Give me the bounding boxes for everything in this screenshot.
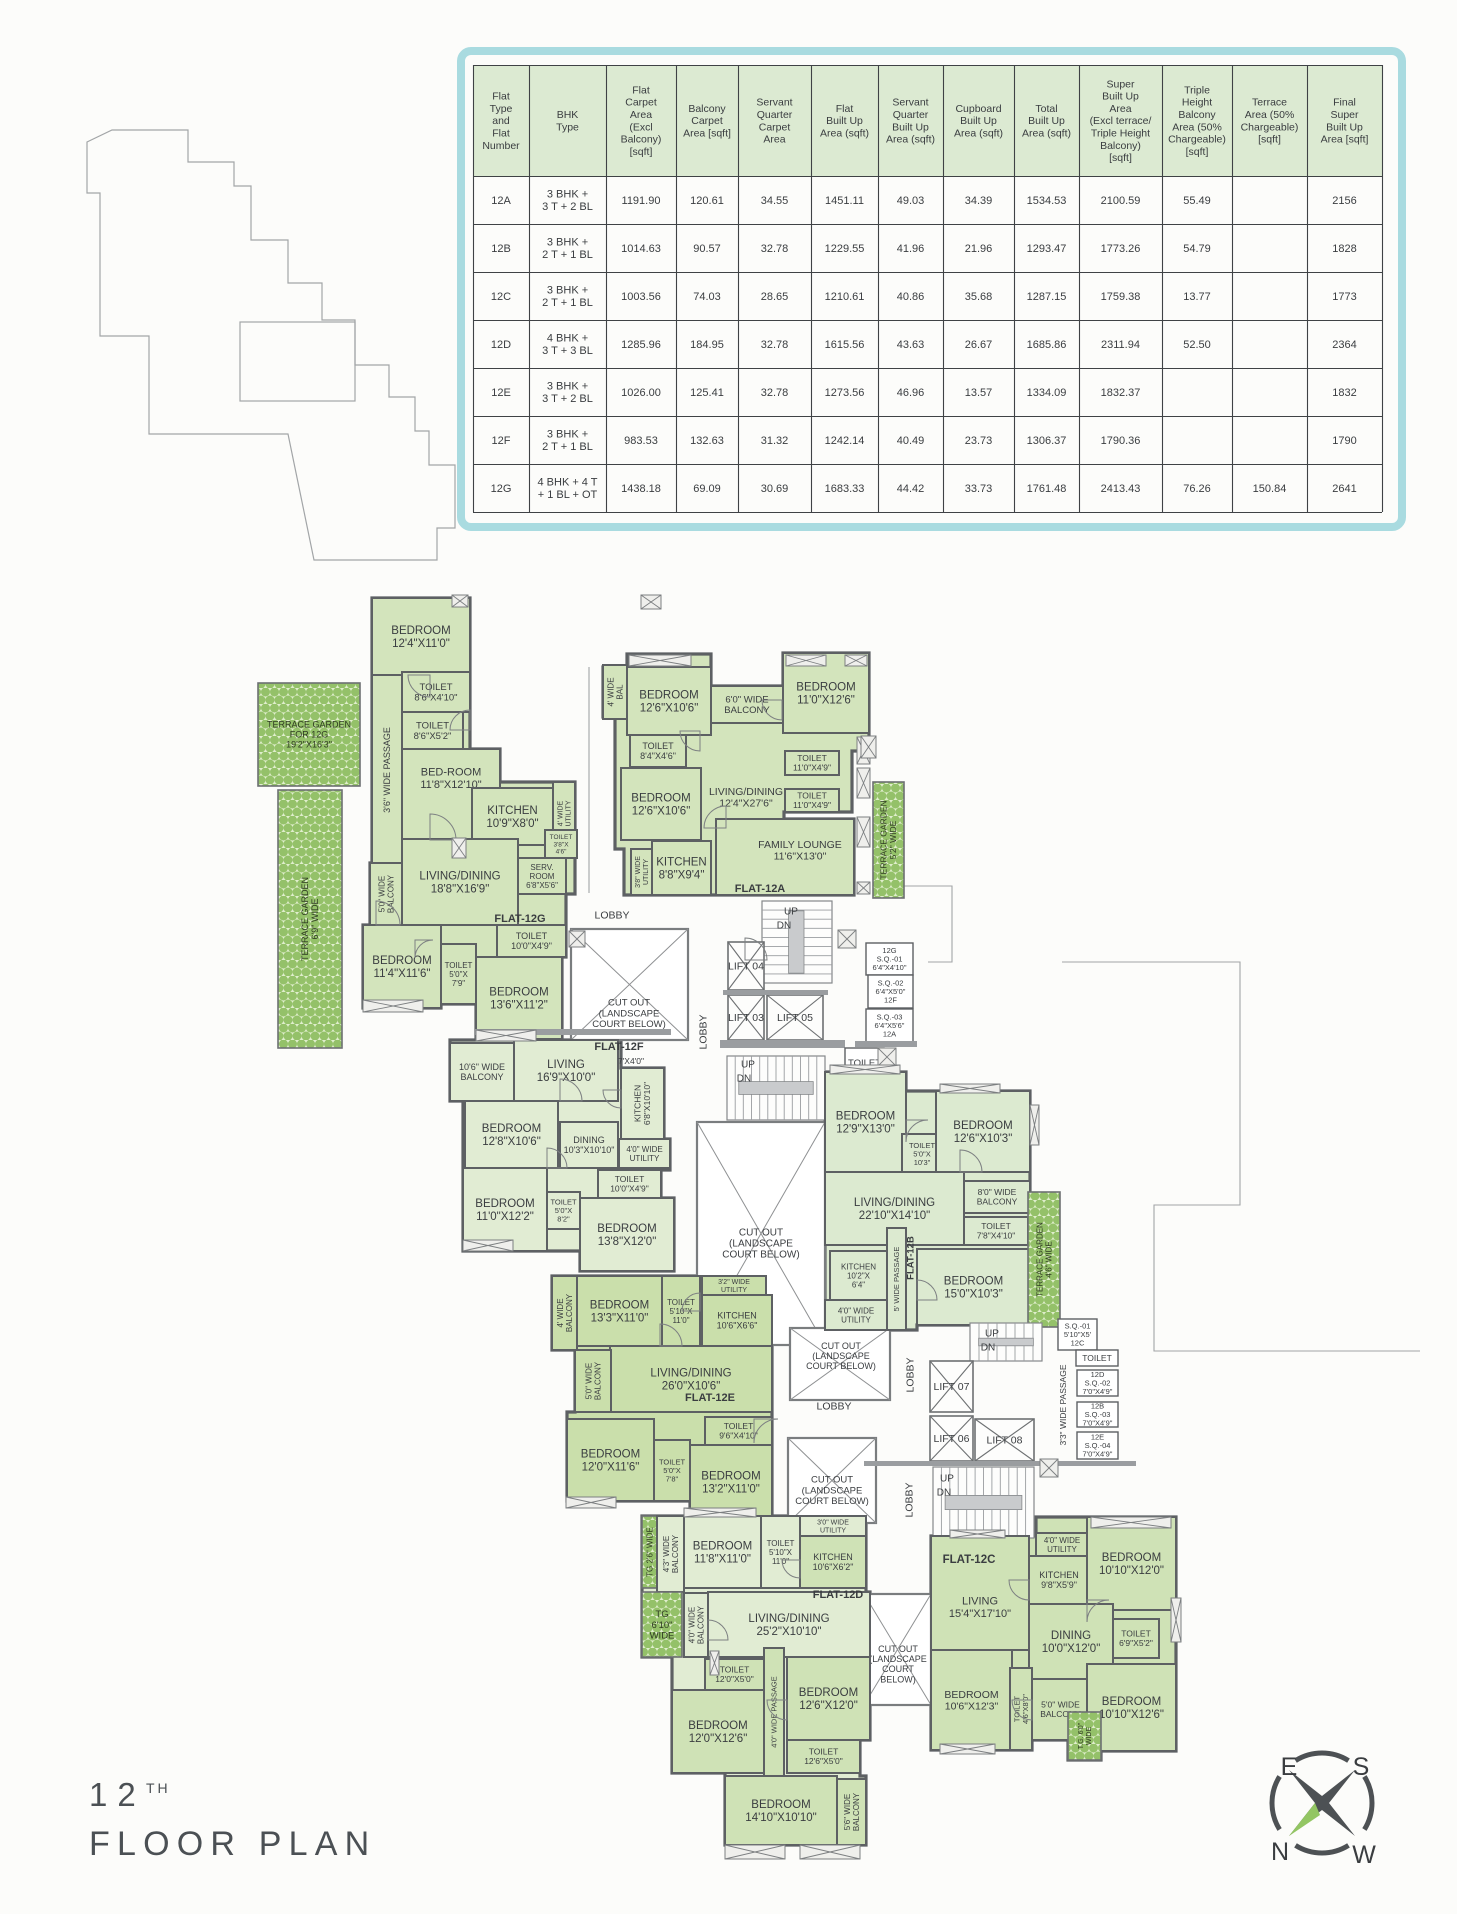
svg-text:13.77: 13.77	[1183, 291, 1211, 303]
svg-text:1210.61: 1210.61	[825, 291, 865, 303]
svg-text:132.63: 132.63	[690, 435, 724, 447]
svg-text:1306.37: 1306.37	[1027, 435, 1067, 447]
svg-text:8'0" WIDEBALCONY: 8'0" WIDEBALCONY	[977, 1187, 1018, 1207]
svg-text:3 BHK +2 T + 1 BL: 3 BHK +2 T + 1 BL	[542, 237, 593, 262]
svg-text:1287.15: 1287.15	[1027, 291, 1067, 303]
svg-text:LIFT 08: LIFT 08	[987, 1435, 1023, 1447]
svg-text:31.32: 31.32	[761, 435, 789, 447]
svg-text:32.78: 32.78	[761, 387, 789, 399]
svg-text:ServantQuarterBuilt UpArea (sq: ServantQuarterBuilt UpArea (sqft)	[886, 97, 935, 146]
svg-text:N: N	[1271, 1838, 1289, 1866]
svg-text:4'0" WIDEUTILITY: 4'0" WIDEUTILITY	[1044, 1536, 1080, 1554]
svg-text:44.42: 44.42	[897, 483, 925, 495]
svg-text:BEDROOM11'0"X12'2": BEDROOM11'0"X12'2"	[475, 1198, 534, 1223]
svg-text:1451.11: 1451.11	[825, 195, 864, 207]
svg-text:76.26: 76.26	[1183, 483, 1211, 495]
svg-text:BEDROOM14'10"X10'10": BEDROOM14'10"X10'10"	[745, 1799, 816, 1824]
svg-text:BEDROOM12'0"X12'6": BEDROOM12'0"X12'6"	[688, 1720, 747, 1745]
svg-text:DN: DN	[777, 921, 791, 932]
svg-text:43.63: 43.63	[897, 339, 925, 351]
svg-text:FLOOR PLAN: FLOOR PLAN	[89, 1825, 376, 1863]
svg-text:LOBBY: LOBBY	[904, 1482, 916, 1517]
svg-text:3 BHK +3 T + 2 BL: 3 BHK +3 T + 2 BL	[542, 189, 593, 214]
svg-text:LIVING/DINING26'0"X10'6": LIVING/DINING26'0"X10'6"	[650, 1368, 731, 1393]
svg-text:1832: 1832	[1332, 387, 1356, 399]
svg-text:21.96: 21.96	[965, 243, 993, 255]
svg-text:TG 2'6" WIDE: TG 2'6" WIDE	[645, 1527, 654, 1577]
svg-text:6'0" WIDEBALCONY: 6'0" WIDEBALCONY	[724, 695, 770, 717]
svg-text:3'6" WIDE PASSAGE: 3'6" WIDE PASSAGE	[382, 727, 392, 813]
svg-text:1773.26: 1773.26	[1101, 243, 1141, 255]
svg-text:TOILET9'6"X4'10": TOILET9'6"X4'10"	[719, 1421, 758, 1441]
svg-text:LIFT 04: LIFT 04	[728, 961, 764, 973]
svg-text:LOBBY: LOBBY	[698, 1014, 710, 1049]
svg-text:TOILET: TOILET	[1082, 1353, 1112, 1363]
svg-text:KITCHEN10'6"X6'6": KITCHEN10'6"X6'6"	[717, 1311, 758, 1331]
svg-text:UP: UP	[940, 1474, 954, 1485]
svg-text:1790.36: 1790.36	[1101, 435, 1141, 447]
svg-text:1273.56: 1273.56	[825, 387, 865, 399]
svg-text:BEDROOM12'0"X11'6": BEDROOM12'0"X11'6"	[581, 1449, 640, 1474]
svg-text:150.84: 150.84	[1253, 483, 1287, 495]
svg-text:LIFT 05: LIFT 05	[777, 1012, 813, 1024]
svg-text:10'6" WIDEBALCONY: 10'6" WIDEBALCONY	[459, 1062, 505, 1082]
svg-text:TOILET12'0"X5'0": TOILET12'0"X5'0"	[715, 1665, 754, 1685]
svg-text:1285.96: 1285.96	[621, 339, 661, 351]
svg-text:2364: 2364	[1332, 339, 1356, 351]
svg-text:40.49: 40.49	[897, 435, 925, 447]
svg-text:1334.09: 1334.09	[1027, 387, 1067, 399]
svg-text:BEDROOM12'6"X10'6": BEDROOM12'6"X10'6"	[631, 793, 690, 818]
svg-text:FLAT-12A: FLAT-12A	[735, 883, 786, 895]
svg-text:1832.37: 1832.37	[1101, 387, 1141, 399]
svg-text:120.61: 120.61	[690, 195, 724, 207]
svg-text:1828: 1828	[1332, 243, 1356, 255]
svg-text:28.65: 28.65	[761, 291, 789, 303]
svg-text:1615.56: 1615.56	[825, 339, 865, 351]
svg-text:BEDROOM12'4"X11'0": BEDROOM12'4"X11'0"	[391, 625, 450, 650]
svg-text:BEDROOM12'6"X12'0": BEDROOM12'6"X12'0"	[799, 1687, 858, 1712]
svg-text:4'3" WIDEBALCONY: 4'3" WIDEBALCONY	[662, 1534, 680, 1573]
svg-text:UP: UP	[741, 1060, 755, 1071]
svg-text:BEDROOM13'6"X11'2": BEDROOM13'6"X11'2"	[489, 987, 548, 1012]
svg-text:1293.47: 1293.47	[1027, 243, 1067, 255]
svg-text:46.96: 46.96	[897, 387, 925, 399]
svg-text:34.39: 34.39	[965, 195, 993, 207]
svg-text:34.55: 34.55	[761, 195, 789, 207]
svg-text:2641: 2641	[1332, 483, 1356, 495]
svg-text:FLAT-12B: FLAT-12B	[905, 1236, 916, 1280]
svg-text:5'0" WIDEBALCONY: 5'0" WIDEBALCONY	[584, 1361, 602, 1400]
svg-text:1191.90: 1191.90	[622, 195, 661, 207]
svg-text:BEDROOM10'10"X12'6": BEDROOM10'10"X12'6"	[1099, 1696, 1164, 1721]
svg-text:49.03: 49.03	[897, 195, 925, 207]
svg-text:23.73: 23.73	[965, 435, 993, 447]
svg-text:12B: 12B	[491, 243, 511, 255]
svg-text:KITCHEN10'6"X6'2": KITCHEN10'6"X6'2"	[813, 1552, 854, 1572]
svg-text:LOBBY: LOBBY	[905, 1357, 917, 1392]
svg-text:UP: UP	[784, 907, 798, 918]
svg-text:FLAT-12E: FLAT-12E	[685, 1392, 735, 1404]
svg-text:DN: DN	[937, 1488, 951, 1499]
svg-text:1438.18: 1438.18	[621, 483, 661, 495]
svg-text:TOILET8'4"X4'6": TOILET8'4"X4'6"	[640, 741, 676, 761]
svg-text:4'0" WIDEBALCONY: 4'0" WIDEBALCONY	[687, 1605, 705, 1644]
svg-text:TOILET7'8"X4'10": TOILET7'8"X4'10"	[977, 1221, 1016, 1241]
svg-text:LOBBY: LOBBY	[594, 910, 629, 922]
svg-text:3 BHK +3 T + 2 BL: 3 BHK +3 T + 2 BL	[542, 381, 593, 406]
svg-text:3 BHK +2 T + 1 BL: 3 BHK +2 T + 1 BL	[542, 285, 593, 310]
svg-text:BEDROOM15'0"X10'3": BEDROOM15'0"X10'3"	[944, 1276, 1003, 1301]
svg-text:W: W	[1352, 1841, 1376, 1869]
svg-text:FLAT-12F: FLAT-12F	[594, 1041, 644, 1053]
svg-text:12D: 12D	[491, 339, 511, 351]
svg-text:12E: 12E	[491, 387, 511, 399]
svg-text:LOBBY: LOBBY	[816, 1401, 851, 1413]
svg-text:1761.48: 1761.48	[1027, 483, 1067, 495]
svg-text:4' WIDEUTILITY: 4' WIDEUTILITY	[558, 800, 573, 826]
svg-text:FLAT-12D: FLAT-12D	[813, 1589, 864, 1601]
svg-text:74.03: 74.03	[693, 291, 721, 303]
svg-text:33.73: 33.73	[965, 483, 993, 495]
svg-text:KITCHEN9'8"X5'9": KITCHEN9'8"X5'9"	[1039, 1570, 1079, 1590]
svg-text:12F: 12F	[492, 435, 511, 447]
svg-text:TOILET8'6"X5'2": TOILET8'6"X5'2"	[414, 721, 452, 743]
svg-text:LIFT 06: LIFT 06	[934, 1433, 970, 1445]
svg-text:3'0" WIDEUTILITY: 3'0" WIDEUTILITY	[817, 1520, 849, 1535]
svg-text:69.09: 69.09	[693, 483, 721, 495]
svg-text:5'6" WIDEBALCONY: 5'6" WIDEBALCONY	[843, 1792, 861, 1831]
svg-text:5' WIDE PASSAGE: 5' WIDE PASSAGE	[892, 1247, 901, 1312]
svg-text:BEDROOM13'2"X11'0": BEDROOM13'2"X11'0"	[701, 1471, 760, 1496]
svg-text:1759.38: 1759.38	[1101, 291, 1141, 303]
svg-text:55.49: 55.49	[1183, 195, 1211, 207]
svg-text:40.86: 40.86	[897, 291, 925, 303]
svg-text:BEDROOM12'8"X10'6": BEDROOM12'8"X10'6"	[482, 1123, 541, 1148]
svg-text:12G: 12G	[491, 483, 512, 495]
svg-text:2156: 2156	[1332, 195, 1356, 207]
svg-text:S: S	[1353, 1753, 1370, 1781]
svg-text:KITCHEN6'8"X10'10": KITCHEN6'8"X10'10"	[633, 1082, 653, 1125]
svg-text:BEDROOM10'10"X12'0": BEDROOM10'10"X12'0"	[1099, 1552, 1164, 1577]
svg-text:2311.94: 2311.94	[1101, 339, 1140, 351]
svg-text:35.68: 35.68	[965, 291, 993, 303]
svg-text:4'0" WIDEUTILITY: 4'0" WIDEUTILITY	[838, 1306, 874, 1324]
svg-text:3'8" WIDEUTILITY: 3'8" WIDEUTILITY	[635, 856, 650, 888]
svg-text:KITCHEN8'8"X9'4": KITCHEN8'8"X9'4"	[656, 857, 706, 882]
svg-text:FLAT-12G: FLAT-12G	[494, 913, 545, 925]
svg-text:E: E	[1281, 1753, 1298, 1781]
svg-text:SERV.ROOM6'8"X5'6": SERV.ROOM6'8"X5'6"	[526, 863, 558, 890]
svg-text:1773: 1773	[1332, 291, 1356, 303]
svg-text:TOILET10'0"X4'9": TOILET10'0"X4'9"	[511, 931, 552, 951]
svg-text:CupboardBuilt UpArea (sqft): CupboardBuilt UpArea (sqft)	[954, 103, 1003, 140]
svg-text:DN: DN	[737, 1074, 751, 1085]
svg-text:32.78: 32.78	[761, 243, 789, 255]
svg-text:4' WIDEBALCONY: 4' WIDEBALCONY	[556, 1293, 574, 1332]
svg-text:FLAT-12C: FLAT-12C	[943, 1554, 996, 1566]
svg-text:BHKType: BHKType	[556, 109, 579, 133]
svg-text:1242.14: 1242.14	[825, 435, 865, 447]
svg-text:1790: 1790	[1332, 435, 1356, 447]
svg-text:3'2" WIDEUTILITY: 3'2" WIDEUTILITY	[718, 1279, 750, 1294]
svg-text:983.53: 983.53	[624, 435, 658, 447]
svg-text:12A: 12A	[491, 195, 511, 207]
svg-text:BEDROOM12'9"X13'0": BEDROOM12'9"X13'0"	[836, 1111, 895, 1136]
svg-text:125.41: 125.41	[690, 387, 724, 399]
svg-text:TOILET11'0"X4'9": TOILET11'0"X4'9"	[793, 791, 831, 811]
svg-text:LIFT 03: LIFT 03	[728, 1012, 764, 1024]
svg-text:TOILET11'0"X4'9": TOILET11'0"X4'9"	[793, 753, 831, 773]
svg-text:1026.00: 1026.00	[621, 387, 661, 399]
svg-text:LIFT 07: LIFT 07	[934, 1381, 970, 1393]
svg-text:LIVING/DINING22'10"X14'10": LIVING/DINING22'10"X14'10"	[854, 1197, 935, 1222]
svg-text:1003.56: 1003.56	[621, 291, 661, 303]
svg-text:7'X4'0": 7'X4'0"	[618, 1056, 644, 1066]
svg-text:13.57: 13.57	[965, 387, 993, 399]
svg-text:3 BHK +2 T + 1 BL: 3 BHK +2 T + 1 BL	[542, 429, 593, 454]
svg-text:BEDROOM13'3"X11'0": BEDROOM13'3"X11'0"	[590, 1300, 649, 1325]
svg-text:3'3" WIDE PASSAGE: 3'3" WIDE PASSAGE	[1058, 1364, 1068, 1445]
svg-text:2100.59: 2100.59	[1101, 195, 1141, 207]
svg-text:90.57: 90.57	[693, 243, 721, 255]
svg-text:TOILET10'0"X4'9": TOILET10'0"X4'9"	[610, 1174, 649, 1194]
svg-text:32.78: 32.78	[761, 339, 789, 351]
svg-text:TOILET6'9"X5'2": TOILET6'9"X5'2"	[1119, 1629, 1153, 1649]
svg-text:1683.33: 1683.33	[825, 483, 865, 495]
svg-text:LIVING/DINING25'2"X10'10": LIVING/DINING25'2"X10'10"	[748, 1613, 829, 1638]
svg-text:UP: UP	[985, 1329, 999, 1340]
svg-text:1534.53: 1534.53	[1027, 195, 1067, 207]
svg-text:LIVING/DINING12'4"X27'6": LIVING/DINING12'4"X27'6"	[709, 786, 783, 810]
svg-text:DN: DN	[981, 1343, 995, 1354]
svg-text:BEDROOM12'6"X10'3": BEDROOM12'6"X10'3"	[953, 1120, 1012, 1145]
svg-text:BEDROOM11'8"X11'0": BEDROOM11'8"X11'0"	[693, 1541, 752, 1566]
svg-text:2413.43: 2413.43	[1101, 483, 1141, 495]
svg-text:TOILET12'6"X5'0": TOILET12'6"X5'0"	[804, 1747, 843, 1767]
svg-text:26.67: 26.67	[965, 339, 993, 351]
svg-text:30.69: 30.69	[761, 483, 789, 495]
svg-text:4'0" WIDEUTILITY: 4'0" WIDEUTILITY	[626, 1145, 662, 1163]
svg-text:4 BHK +3 T + 3 BL: 4 BHK +3 T + 3 BL	[542, 333, 593, 358]
svg-text:TH: TH	[146, 1780, 171, 1796]
svg-text:BEDROOM10'6"X12'3": BEDROOM10'6"X12'3"	[944, 1689, 998, 1713]
svg-text:TOILET8'6"X4'10": TOILET8'6"X4'10"	[414, 682, 457, 704]
svg-text:1014.63: 1014.63	[621, 243, 661, 255]
svg-text:52.50: 52.50	[1183, 339, 1211, 351]
svg-text:54.79: 54.79	[1183, 243, 1211, 255]
svg-text:1685.86: 1685.86	[1027, 339, 1067, 351]
svg-text:BEDROOM11'0"X12'6": BEDROOM11'0"X12'6"	[796, 682, 855, 707]
svg-text:4 BHK + 4 T+ 1 BL + OT: 4 BHK + 4 T+ 1 BL + OT	[537, 477, 597, 502]
svg-text:KITCHEN10'9"X8'0": KITCHEN10'9"X8'0"	[486, 805, 538, 830]
svg-text:12C: 12C	[491, 291, 511, 303]
svg-text:BEDROOM11'4"X11'6": BEDROOM11'4"X11'6"	[372, 955, 431, 980]
svg-text:1229.55: 1229.55	[825, 243, 865, 255]
svg-text:184.95: 184.95	[690, 339, 724, 351]
svg-text:41.96: 41.96	[897, 243, 925, 255]
svg-text:LIVING/DINING18'8"X16'9": LIVING/DINING18'8"X16'9"	[419, 871, 500, 896]
svg-text:12: 12	[89, 1776, 146, 1813]
svg-text:BEDROOM13'8"X12'0": BEDROOM13'8"X12'0"	[597, 1223, 656, 1248]
svg-text:BEDROOM12'6"X10'6": BEDROOM12'6"X10'6"	[639, 690, 698, 715]
